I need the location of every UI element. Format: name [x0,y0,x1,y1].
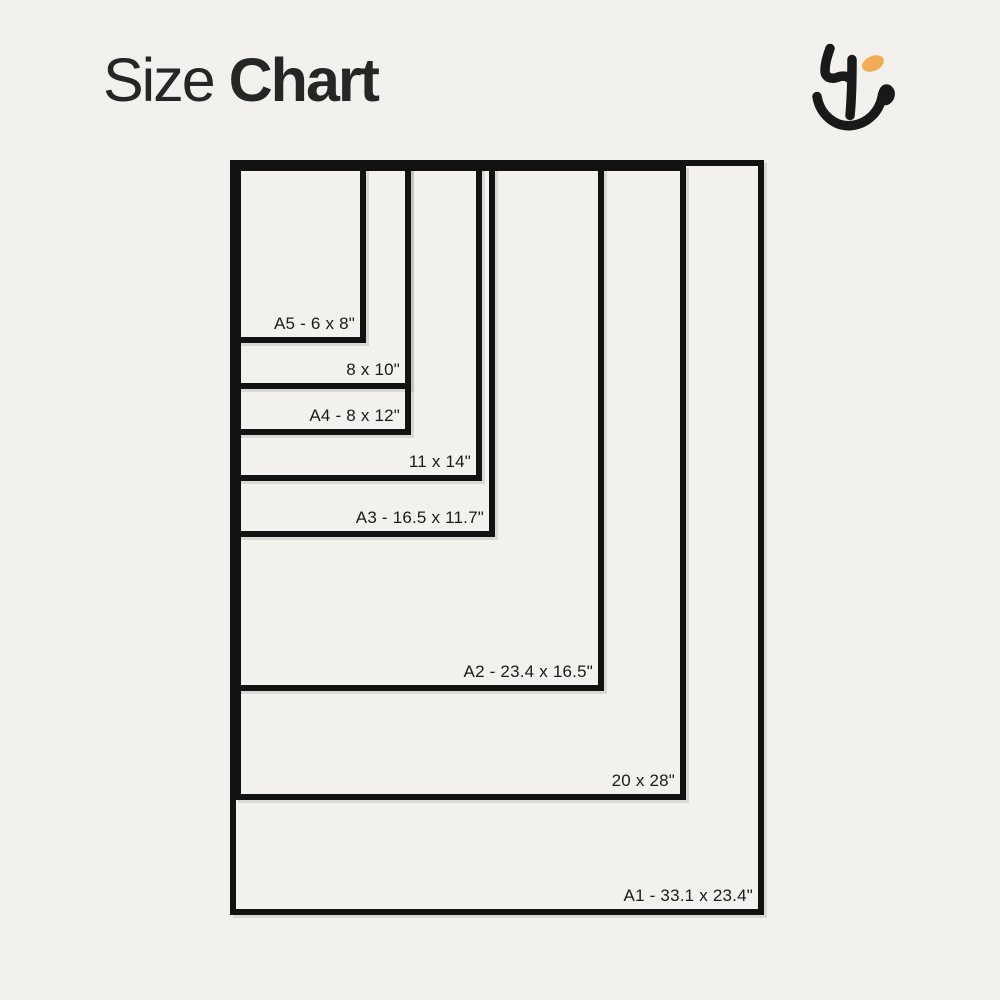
size-label-20x28: 20 x 28" [612,771,675,791]
size-label-a3: A3 - 16.5 x 11.7" [356,508,484,528]
size-label-a4: A4 - 8 x 12" [309,406,400,426]
poster-canvas: Size Chart A1 - 33.1 x 23.4"20 x 28"A2 -… [0,0,1000,1000]
size-label-a2: A2 - 23.4 x 16.5" [464,662,593,682]
size-label-a1: A1 - 33.1 x 23.4" [624,886,753,906]
size-label-8x10: 8 x 10" [346,360,400,380]
size-rect-a5: A5 - 6 x 8" [235,165,366,343]
size-label-a5: A5 - 6 x 8" [274,314,355,334]
size-label-11x14: 11 x 14" [409,452,471,472]
size-chart: A1 - 33.1 x 23.4"20 x 28"A2 - 23.4 x 16.… [0,0,1000,1000]
